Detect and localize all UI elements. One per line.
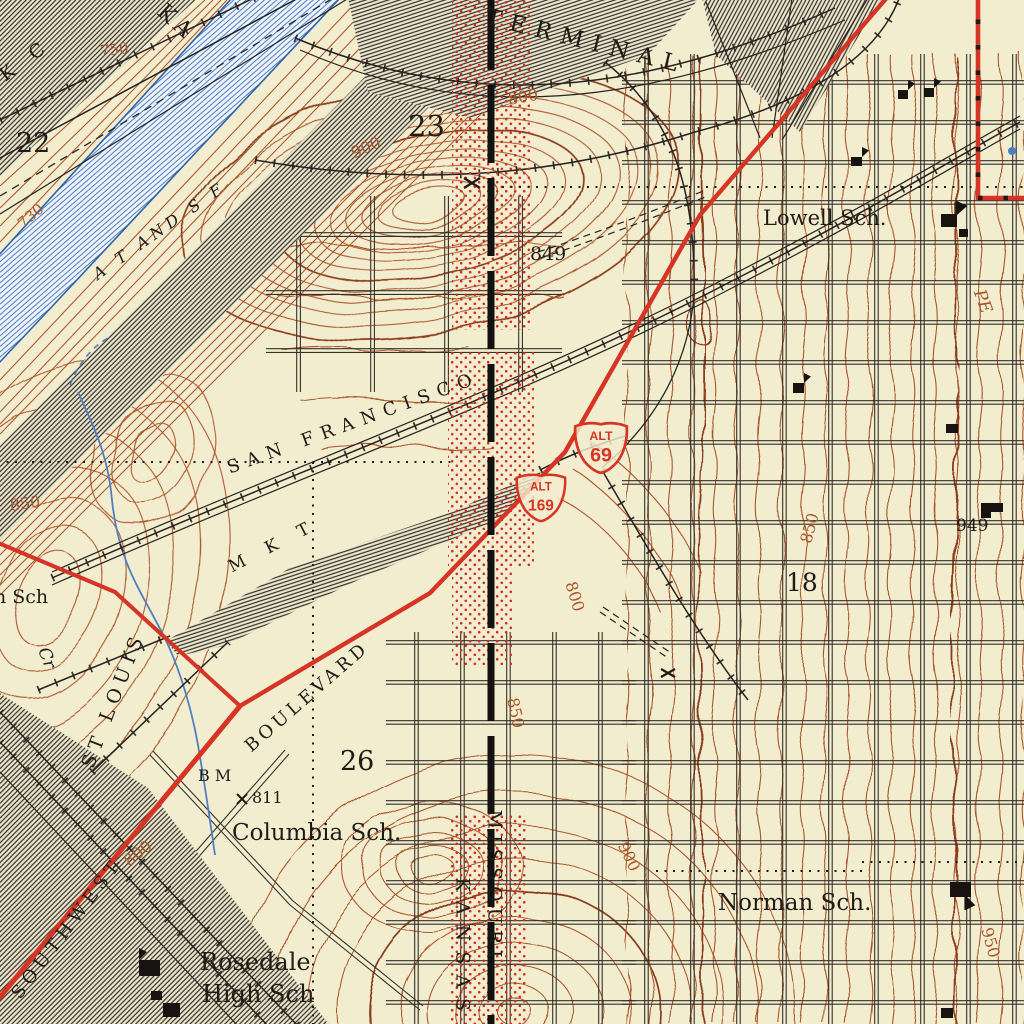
building: [959, 229, 968, 237]
shield-number-text: 69: [590, 444, 612, 466]
shield-number-text: 169: [528, 498, 554, 515]
highway-shield-alt-69: ALT 69: [570, 418, 632, 476]
spot-elevation-949: 949: [956, 518, 988, 535]
state-label-kansas: KANSAS: [453, 878, 472, 1022]
section-number-26: 26: [340, 748, 374, 775]
building: [151, 991, 162, 1000]
contour-label-750: 750: [99, 41, 129, 59]
building: [163, 1003, 180, 1017]
shield-banner-text: ALT: [530, 481, 552, 493]
school-label-rosedale-2: High Sch: [202, 982, 314, 1006]
school-label-partial: n Sch: [0, 588, 48, 607]
state-label-missouri: MISSOURI: [485, 810, 504, 964]
building: [941, 1008, 953, 1018]
building: [946, 424, 958, 433]
school-label-norman: Norman Sch.: [718, 892, 871, 915]
school-label-rosedale-1: Rosedale: [200, 950, 311, 974]
highway-shield-alt-169: ALT 169: [512, 470, 570, 524]
section-number-23: 23: [408, 112, 445, 141]
school-label-columbia: Columbia Sch.: [232, 822, 401, 845]
spot-elevation-811: 811: [252, 790, 283, 806]
spot-elevation-849: 849: [530, 245, 566, 264]
section-number-22: 22: [16, 130, 50, 157]
shield-banner-text: ALT: [589, 429, 613, 443]
section-number-18: 18: [786, 570, 818, 595]
school-label-lowell: Lowell Sch.: [763, 208, 886, 229]
benchmark-label: B M: [198, 768, 231, 784]
small-pond: [1008, 147, 1016, 155]
contour-label-850-center: 850: [504, 696, 526, 729]
topo-map: KA TERMINAL K C 750 22 730 A T AND S F 2…: [0, 0, 1024, 1024]
contour-label-850-west: 850: [9, 494, 41, 514]
